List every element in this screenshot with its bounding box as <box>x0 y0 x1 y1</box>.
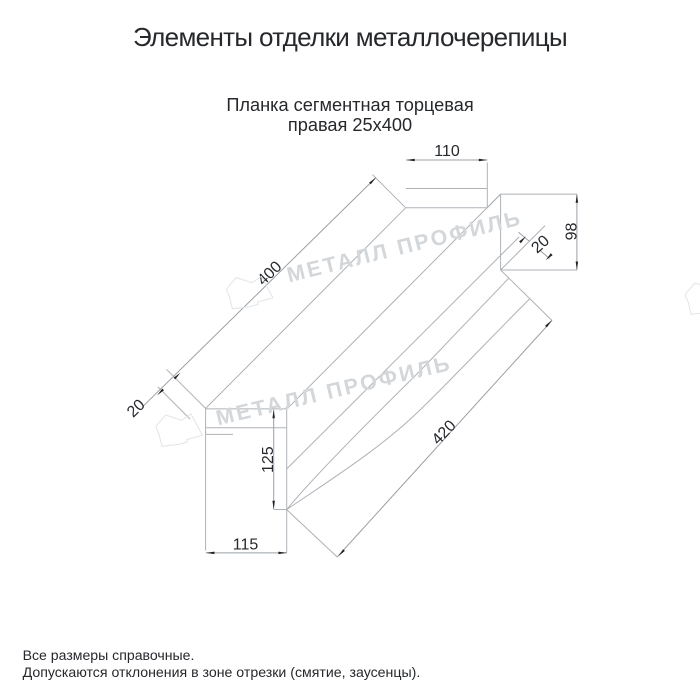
svg-text:МЕТАЛЛ ПРОФИЛЬ: МЕТАЛЛ ПРОФИЛЬ <box>284 206 524 288</box>
svg-text:125: 125 <box>260 446 277 473</box>
svg-text:МЕТАЛЛ ПРОФИЛЬ: МЕТАЛЛ ПРОФИЛЬ <box>214 351 455 430</box>
svg-text:98: 98 <box>564 223 581 241</box>
svg-text:115: 115 <box>233 537 259 554</box>
svg-text:20: 20 <box>124 396 149 421</box>
svg-text:420: 420 <box>429 417 460 448</box>
svg-text:400: 400 <box>254 258 285 289</box>
svg-text:110: 110 <box>434 143 460 160</box>
svg-text:20: 20 <box>528 232 553 257</box>
